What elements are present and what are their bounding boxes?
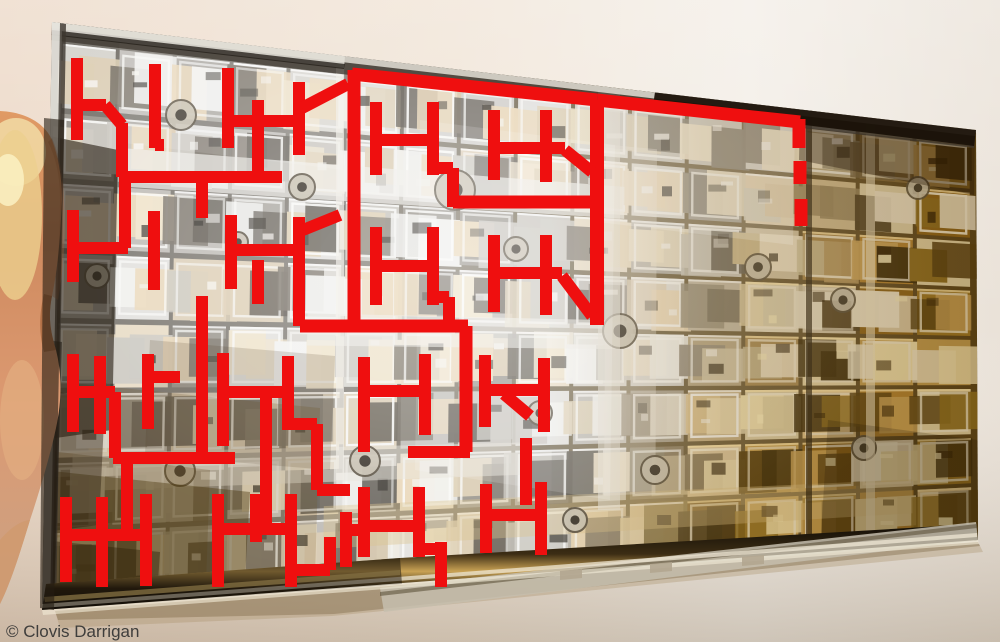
svg-text:© Clovis Darrigan: © Clovis Darrigan (6, 622, 139, 641)
